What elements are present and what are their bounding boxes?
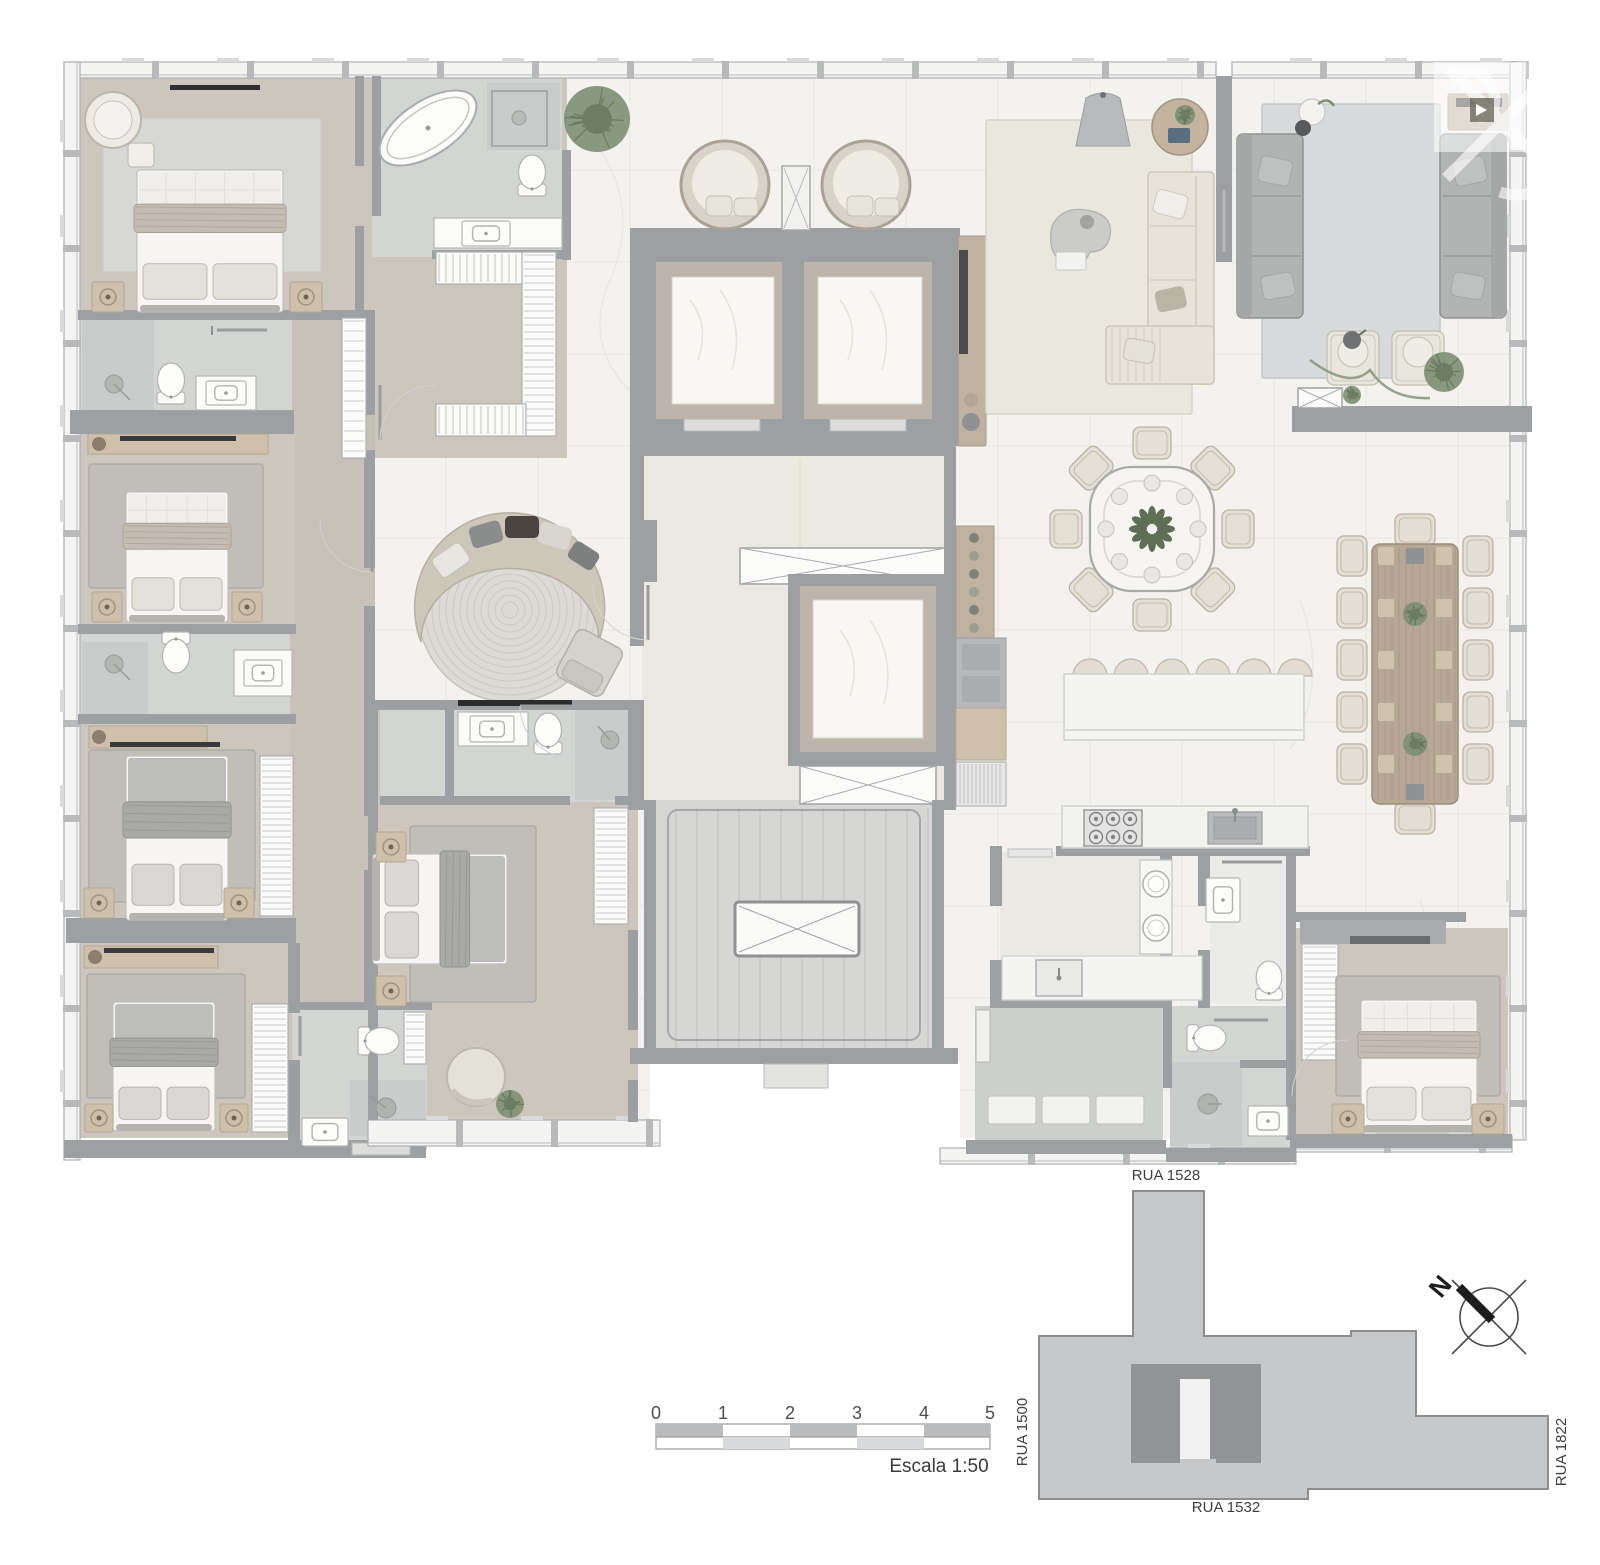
svg-text:5: 5 (985, 1403, 995, 1423)
svg-text:4: 4 (919, 1403, 929, 1423)
svg-text:0: 0 (651, 1403, 661, 1423)
svg-text:RUA 1822: RUA 1822 (1553, 1418, 1570, 1486)
svg-text:Escala 1:50: Escala 1:50 (889, 1456, 988, 1477)
svg-text:2: 2 (785, 1403, 795, 1423)
svg-text:1: 1 (718, 1403, 728, 1423)
svg-text:RUA 1500: RUA 1500 (1014, 1398, 1031, 1466)
svg-text:3: 3 (852, 1403, 862, 1423)
svg-text:RUA 1532: RUA 1532 (1192, 1499, 1260, 1516)
svg-text:RUA 1528: RUA 1528 (1132, 1167, 1200, 1184)
